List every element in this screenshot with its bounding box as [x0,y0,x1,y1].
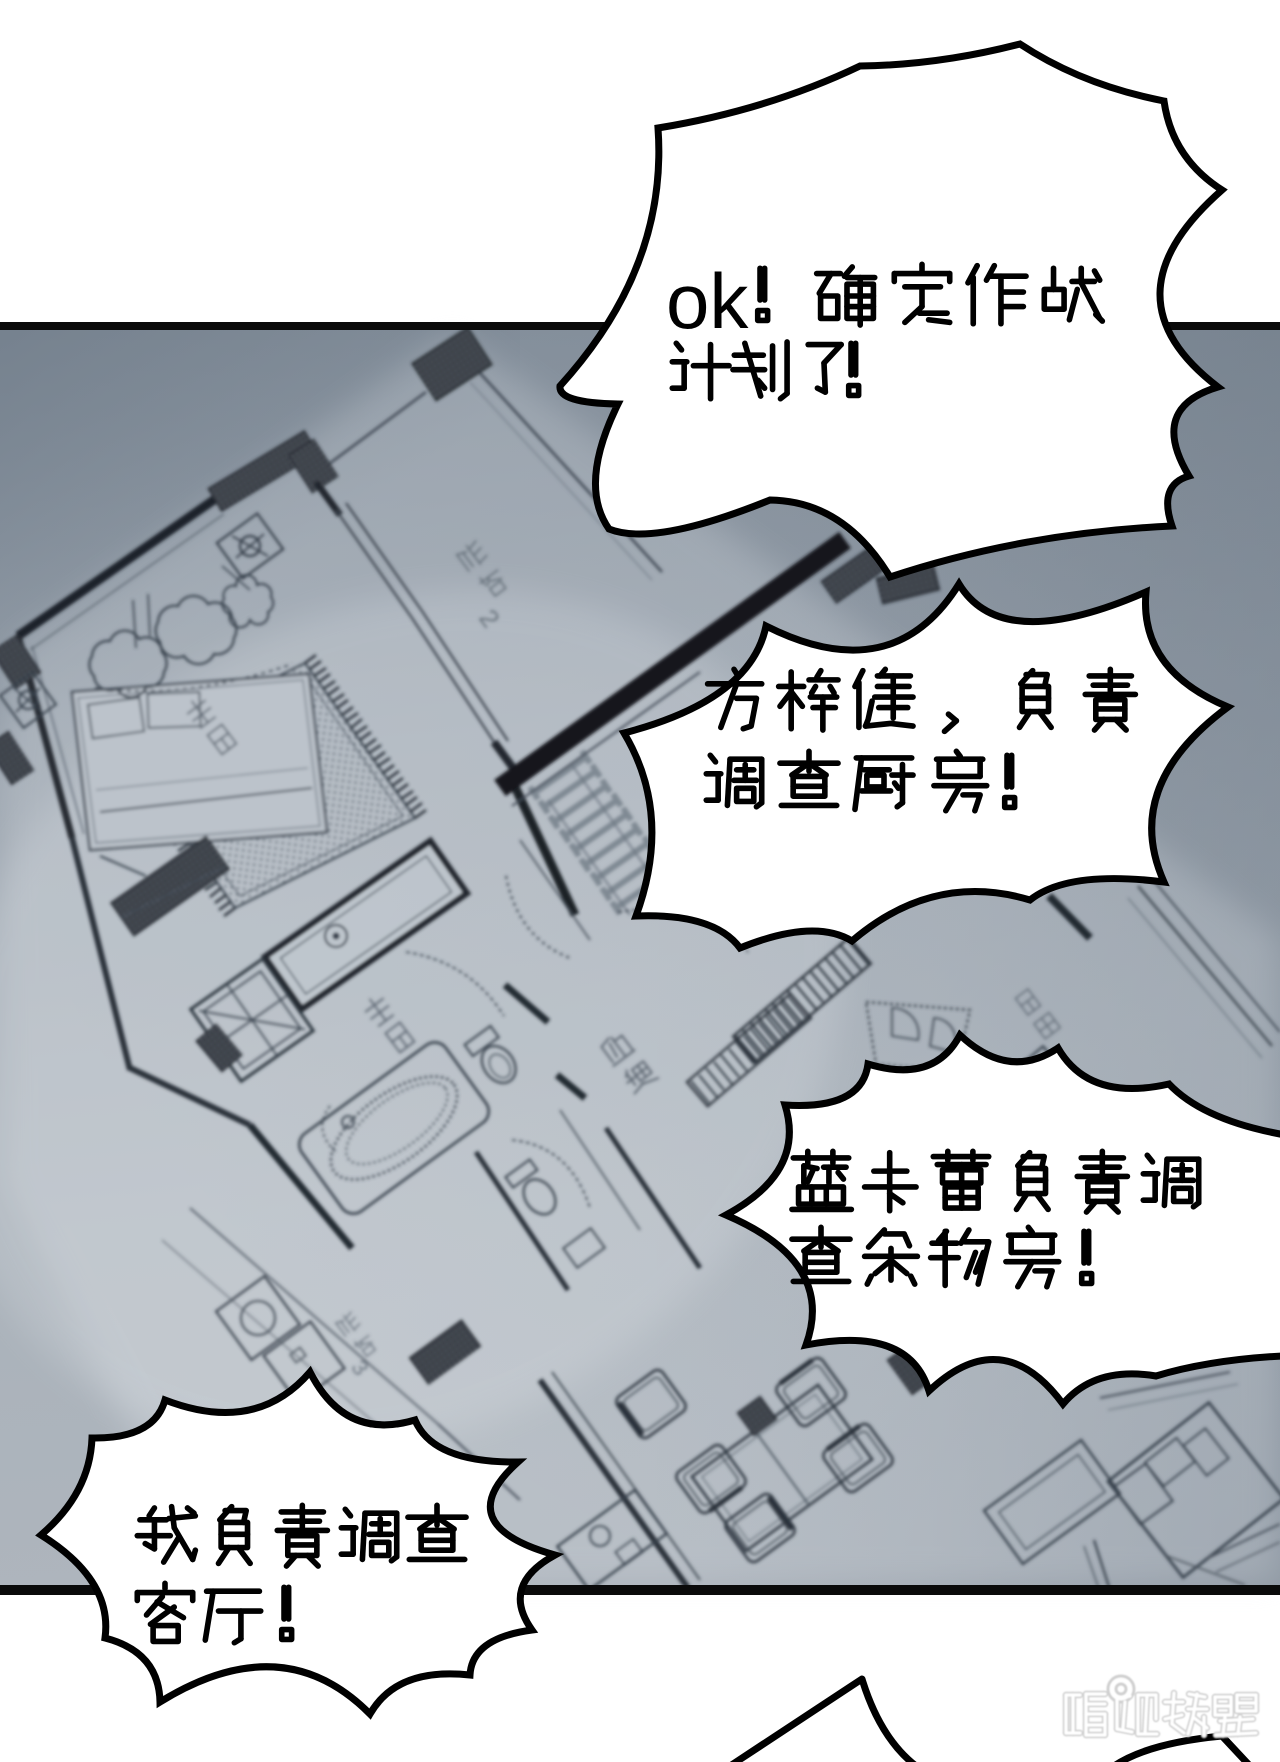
svg-text:ok: ok [666,257,749,345]
